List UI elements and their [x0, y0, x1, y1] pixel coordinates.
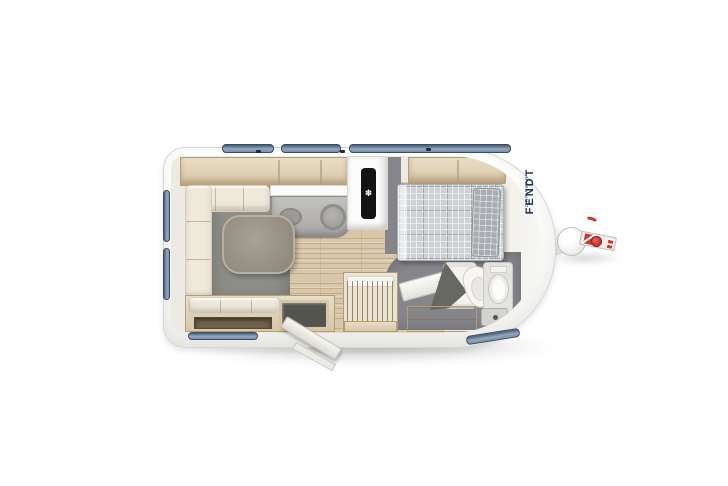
toilet-tank: [490, 266, 507, 273]
window-latch: [256, 150, 261, 153]
vanity-tap: [493, 315, 498, 320]
bed-blanket-edge: [398, 185, 407, 260]
locker-divider: [278, 160, 280, 185]
window-top-middle: [281, 144, 341, 153]
dinette-bench-rear: [185, 185, 212, 299]
bed-pillow: [471, 188, 501, 258]
bathroom-vanity: [481, 308, 508, 326]
window-latch: [426, 148, 431, 151]
kitchen-sink: [320, 204, 346, 230]
brand-subtitle: CARAVAN: [524, 175, 529, 207]
snowflake-icon: ❄: [365, 189, 373, 198]
wardrobe-base: [344, 321, 397, 332]
dinette-bench-bottom-cushion: [188, 297, 280, 314]
window-top-left: [222, 144, 274, 153]
toilet-unit: [483, 262, 513, 314]
fridge-freezer-panel: ❄ ❄ ❄: [361, 168, 376, 219]
dinette-table: [222, 215, 295, 274]
hitch-knob: [591, 236, 602, 247]
wardrobe-hangers: [347, 281, 394, 325]
bathroom-cabinet: [407, 306, 477, 332]
kitchen-upper-shelf: [270, 185, 350, 196]
window-latch: [340, 150, 345, 153]
locker-divider: [320, 160, 322, 185]
wardrobe: [343, 272, 398, 332]
window-bottom-left: [188, 332, 258, 340]
window-rear-lower: [163, 248, 170, 300]
french-bed: [397, 184, 504, 261]
hitch-handle-arc: [583, 215, 599, 229]
window-rear-upper: [163, 190, 170, 242]
hitch-tip-marks: [607, 238, 614, 249]
toilet-bowl: [488, 274, 509, 304]
caravan-interior: ❄ ❄ ❄: [171, 156, 539, 333]
fridge: ❄ ❄ ❄: [347, 156, 388, 230]
bench-open-shelf: [194, 317, 272, 329]
overhead-locker-lounge: [180, 157, 348, 186]
overhead-locker-bed: [408, 157, 506, 184]
locker-divider: [457, 160, 459, 185]
caravan-floorplan: ❄ ❄ ❄: [0, 0, 728, 486]
